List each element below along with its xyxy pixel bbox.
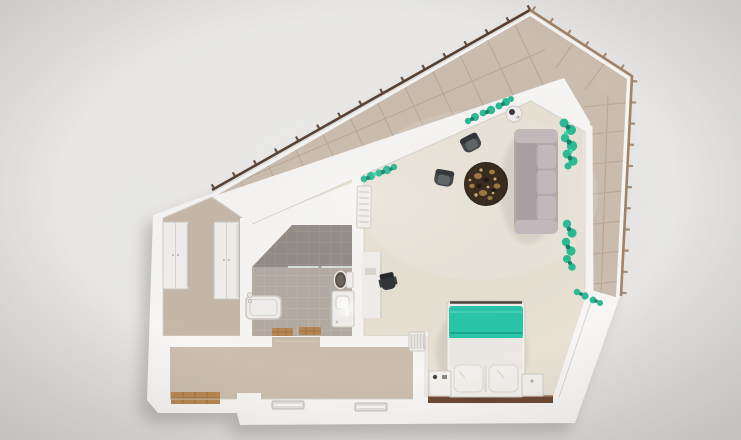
- vignette-overlay: [0, 0, 741, 440]
- floorplan-render: [0, 0, 741, 440]
- apartment-floorplan-svg: [0, 0, 741, 440]
